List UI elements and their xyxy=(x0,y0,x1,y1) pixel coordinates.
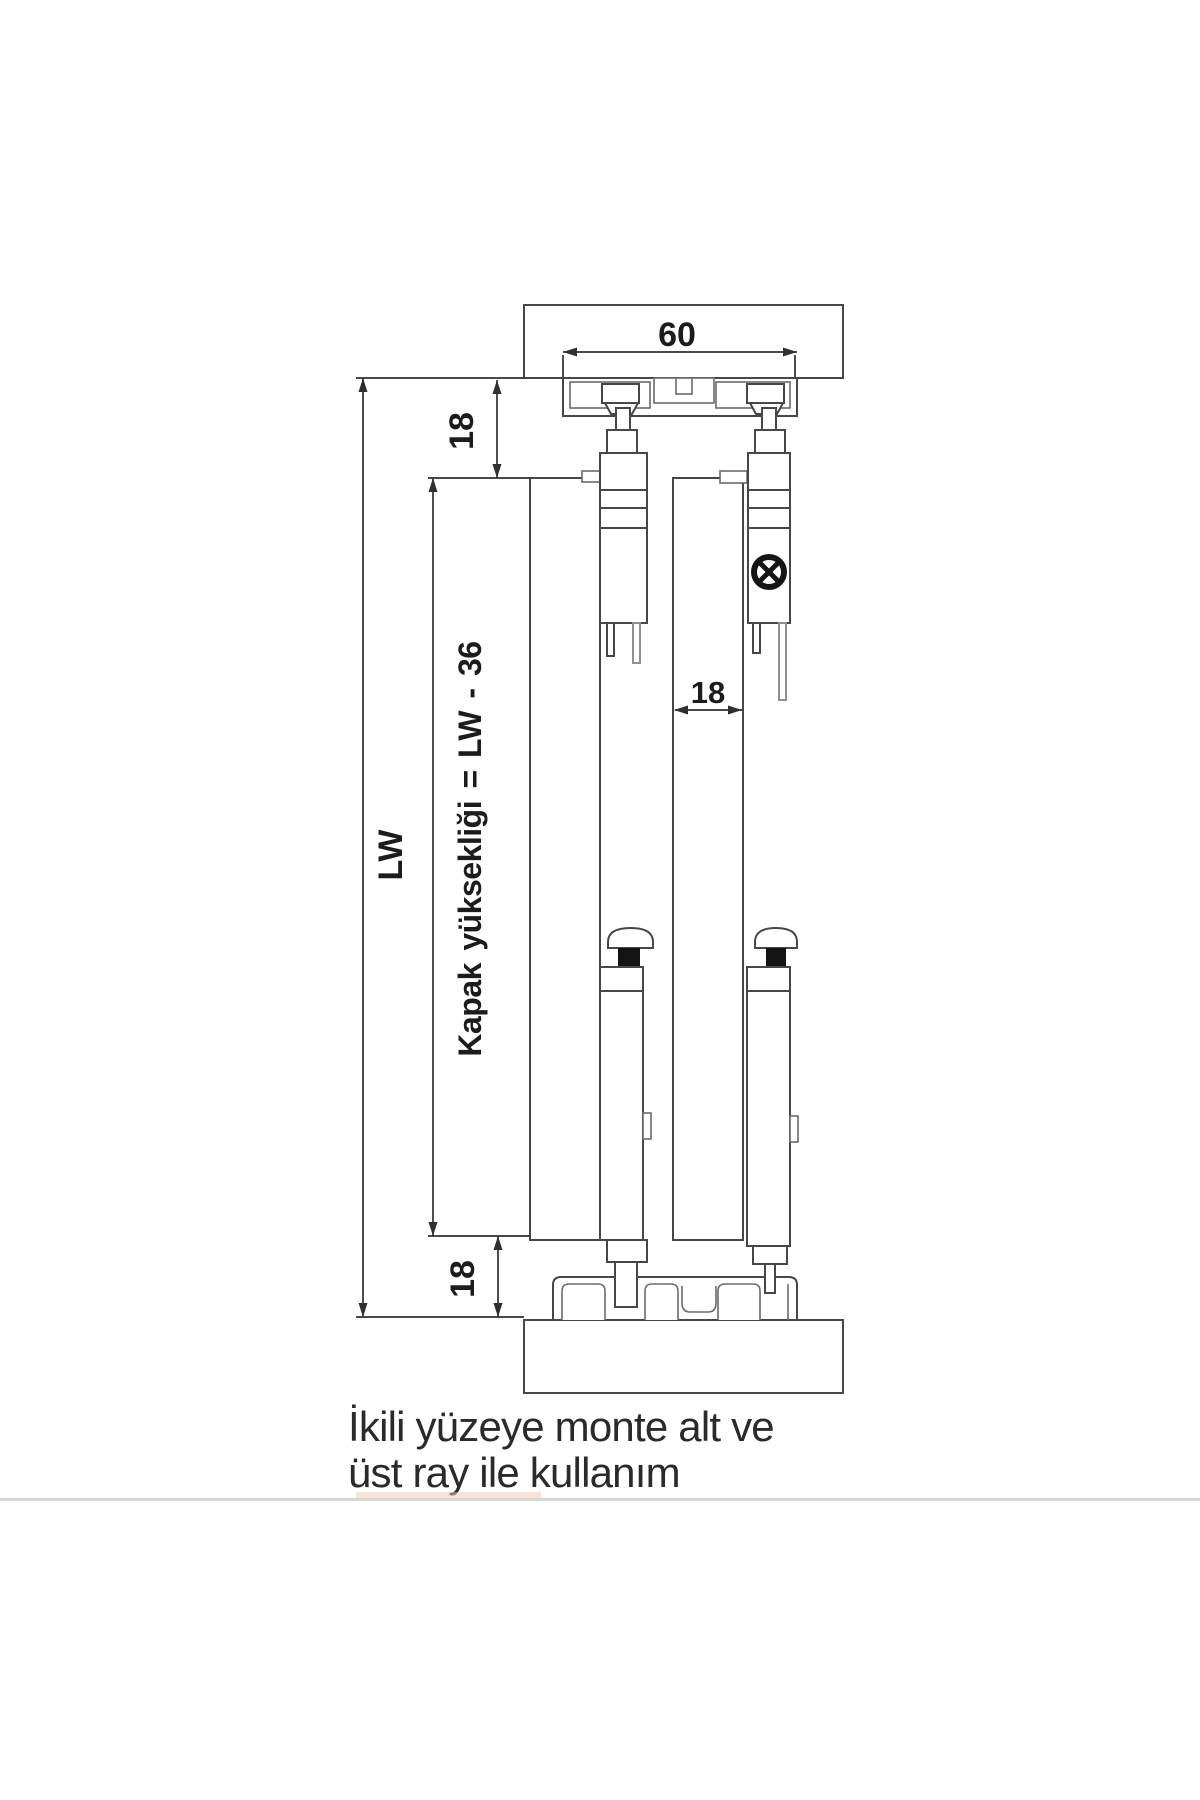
dim-top-clearance: 18 xyxy=(443,380,502,478)
hanger-pin xyxy=(779,623,786,700)
phillips-screw-icon xyxy=(754,557,784,587)
caption-highlight xyxy=(356,1492,541,1498)
dim-label-rail-width: 60 xyxy=(658,316,696,354)
bottom-guide-right xyxy=(747,928,798,1293)
bottom-track-wall xyxy=(562,1284,605,1320)
dim-label-door-thickness: 18 xyxy=(691,675,725,710)
caption-line-1: İkili yüzeye monte alt ve xyxy=(348,1403,774,1450)
caption: İkili yüzeye monte alt ve üst ray ile ku… xyxy=(348,1403,774,1496)
bottom-track xyxy=(553,1277,797,1320)
caption-line-2: üst ray ile kullanım xyxy=(348,1449,680,1496)
hanger-pin xyxy=(607,623,614,656)
guide-collar-left xyxy=(618,948,640,967)
door-panel-right xyxy=(673,478,743,1240)
bottom-panel xyxy=(524,1320,843,1393)
dim-label-bottom-clearance: 18 xyxy=(444,1260,482,1298)
dim-label-opening-height: LW xyxy=(372,829,410,881)
guide-pin-right xyxy=(765,1264,775,1293)
technical-drawing: 60 LW 18 Kapak yüksekliği = LW - 36 18 xyxy=(0,0,1200,1800)
door-top-bracket-right xyxy=(720,471,747,483)
dim-label-door-height: Kapak yüksekliği = LW - 36 xyxy=(452,641,488,1056)
bottom-guide-left xyxy=(600,928,653,1307)
guide-pin-left xyxy=(615,1262,637,1307)
separator-line xyxy=(0,1498,1200,1501)
guide-collar-right xyxy=(766,948,786,967)
dim-door-height: Kapak yüksekliği = LW - 36 xyxy=(428,478,530,1236)
guide-cap-left xyxy=(608,928,653,948)
bottom-track-wall xyxy=(718,1284,760,1320)
hanger-pin xyxy=(633,623,640,663)
hanger-left xyxy=(600,408,647,663)
bottom-track-wall xyxy=(645,1284,678,1320)
dim-bottom-clearance: 18 xyxy=(444,1236,503,1317)
hanger-right xyxy=(748,408,790,700)
dim-label-top-clearance: 18 xyxy=(443,412,481,450)
door-panel-left xyxy=(530,478,600,1240)
hanger-pin xyxy=(753,623,760,653)
page: 60 LW 18 Kapak yüksekliği = LW - 36 18 xyxy=(0,0,1200,1800)
guide-cap-right xyxy=(755,928,797,948)
dim-opening-height: LW xyxy=(356,378,524,1317)
